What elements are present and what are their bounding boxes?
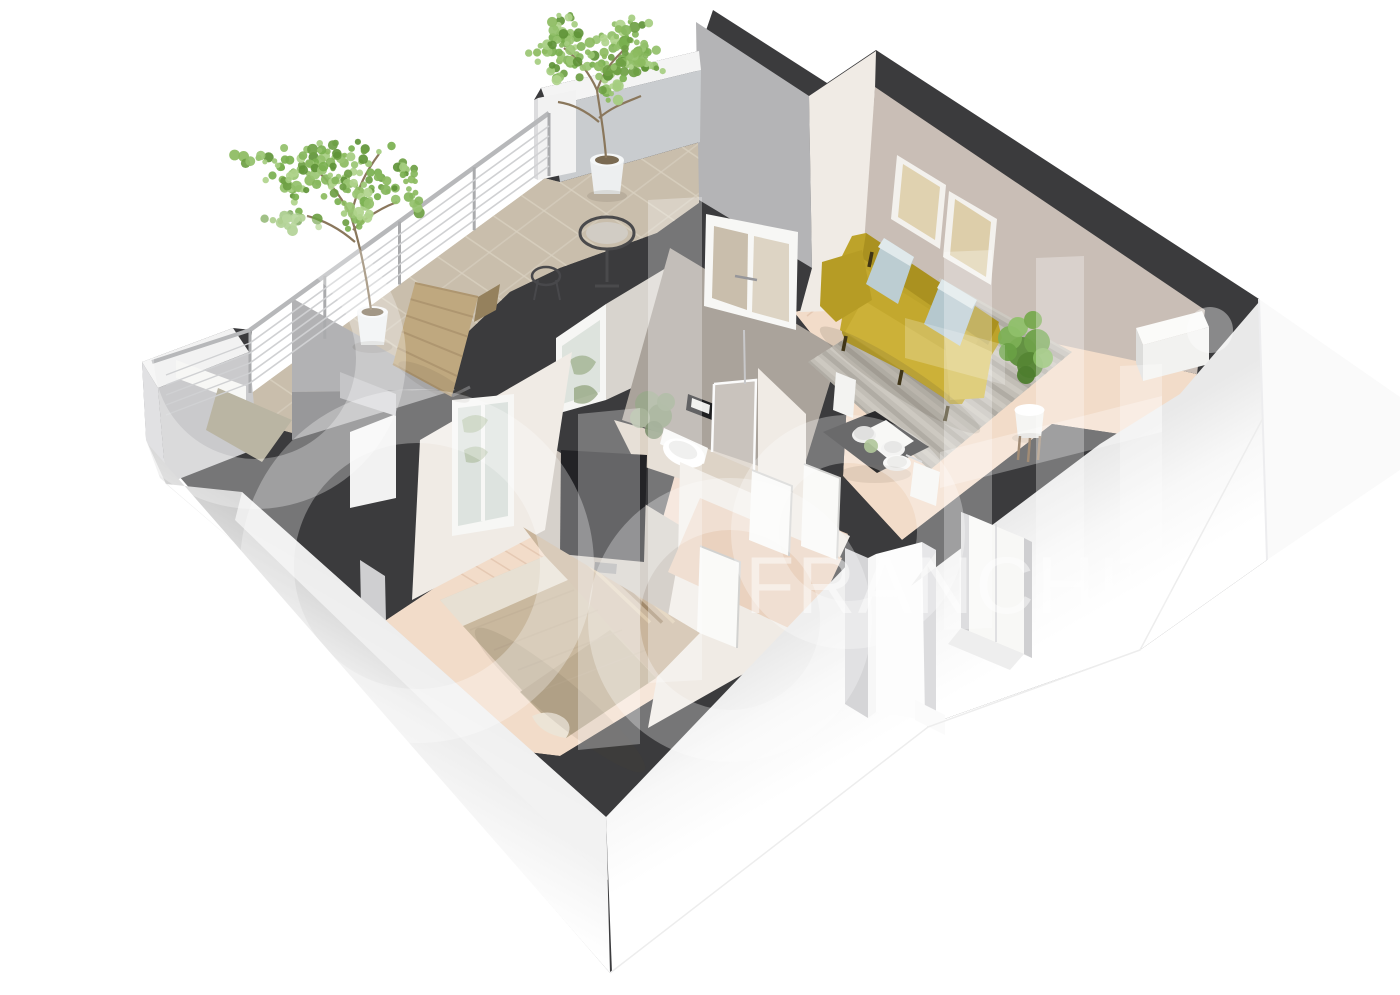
svg-text:FRANCHIS: FRANCHIS	[745, 541, 1179, 631]
